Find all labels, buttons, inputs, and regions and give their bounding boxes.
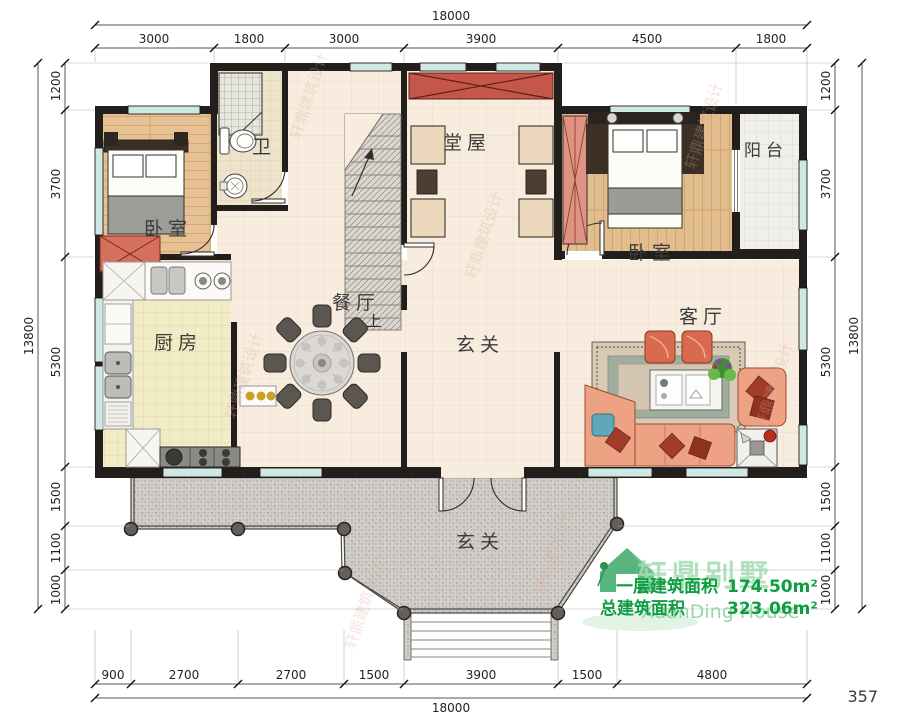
window-living-side-2 [799, 425, 807, 465]
area-line2-value: 323.06m² [727, 599, 818, 619]
blue-cushion [592, 414, 614, 436]
pillow [613, 130, 643, 152]
label-porch: 玄关 [456, 531, 504, 553]
stove-icon [160, 447, 240, 467]
area-line1-value: 174.50m² [727, 577, 818, 597]
armchair [682, 331, 712, 363]
window-bedroom-left-side [95, 148, 103, 235]
dim-bottom-seg: 2700 [276, 668, 307, 682]
label-kitchen: 厨房 [154, 332, 202, 354]
dim-top-total: 18000 [432, 9, 470, 23]
label-dining: 餐厅 [332, 292, 380, 314]
corridor-floor [217, 211, 288, 260]
dim-right-total: 13800 [847, 317, 861, 355]
label-bath: 卫 [252, 136, 276, 158]
window-dining-bottom [260, 468, 322, 477]
dim-top-seg: 3000 [329, 32, 360, 46]
label-living: 客厅 [679, 306, 727, 328]
terrace-steps [404, 613, 558, 660]
window-kitchen-side-2 [95, 366, 103, 430]
dim-top-seg: 1800 [234, 32, 265, 46]
dim-bottom-seg: 4800 [697, 668, 728, 682]
dim-top-seg: 3000 [139, 32, 170, 46]
dim-right-seg: 1100 [819, 533, 833, 564]
window-living-bottom-1 [588, 468, 652, 477]
area-line2-label: 总建筑面积 [600, 598, 685, 619]
dim-bottom-seg: 1500 [572, 668, 603, 682]
kitchen-sink-top [151, 267, 167, 294]
dim-right-seg: 5300 [819, 347, 833, 378]
dim-left-seg: 1500 [49, 482, 63, 513]
dim-bottom-total: 18000 [432, 701, 470, 715]
window-kitchen-side-1 [95, 298, 103, 362]
dim-right-seg: 1000 [819, 575, 833, 606]
label-bedroom-right: 卧室 [628, 242, 676, 264]
dim-right-seg: 1500 [819, 482, 833, 513]
bed-right-post [586, 124, 608, 174]
pillow [146, 155, 176, 177]
altar-cabinet [409, 73, 553, 99]
toilet-icon [220, 128, 256, 154]
dim-left-seg: 1200 [49, 71, 63, 102]
label-balcony: 阳台 [744, 141, 788, 161]
dim-bottom-seg: 2700 [169, 668, 200, 682]
dim-left-seg: 5300 [49, 347, 63, 378]
dim-left-seg: 1000 [49, 575, 63, 606]
floor-plan-drawing: 卧室 卫 堂屋 卧室 阳台 厨房 餐厅 玄关 客厅 玄关 上 18000 300… [0, 0, 900, 720]
bed-right-blanket [608, 188, 682, 214]
front-door-opening [441, 467, 524, 478]
side-table [737, 429, 777, 467]
dim-top-seg: 4500 [632, 32, 663, 46]
window-stairwell [350, 63, 392, 71]
label-foyer: 玄关 [456, 334, 504, 356]
dim-left-seg: 3700 [49, 169, 63, 200]
window-living-side-1 [799, 288, 807, 350]
pillow [113, 155, 143, 177]
logo-dot [600, 562, 608, 570]
dim-top-seg: 1800 [756, 32, 787, 46]
dim-left-seg: 1100 [49, 533, 63, 564]
window-balcony-side [799, 160, 807, 230]
dim-bottom-seg: 3900 [466, 668, 497, 682]
balcony-slider [732, 150, 740, 212]
dim-top-seg: 3900 [466, 32, 497, 46]
pillow [647, 130, 677, 152]
dim-right-seg: 3700 [819, 169, 833, 200]
window-living-bottom-2 [686, 468, 748, 477]
window-tangwu-2 [496, 63, 540, 71]
label-tangwu: 堂屋 [443, 132, 491, 154]
window-bedroom-left-top [128, 106, 200, 114]
page-number: 357 [847, 687, 878, 706]
balcony-floor [740, 114, 799, 249]
dimension-bottom: 900 2700 2700 1500 3900 1500 4800 18000 [91, 630, 811, 715]
label-bedroom-left: 卧室 [144, 218, 192, 240]
window-kitchen-bottom [163, 468, 222, 477]
dim-left-total: 13800 [22, 317, 36, 355]
floor-plan-page: 卧室 卫 堂屋 卧室 阳台 厨房 餐厅 玄关 客厅 玄关 上 18000 300… [0, 0, 900, 720]
dim-bottom-seg: 900 [102, 668, 125, 682]
label-stair-up: 上 [366, 312, 381, 330]
shower [219, 73, 262, 135]
dim-bottom-seg: 1500 [359, 668, 390, 682]
area-line1-label: 一层建筑面积 [616, 576, 718, 597]
armchair [645, 331, 675, 363]
dim-right-seg: 1200 [819, 71, 833, 102]
window-tangwu-1 [420, 63, 466, 71]
